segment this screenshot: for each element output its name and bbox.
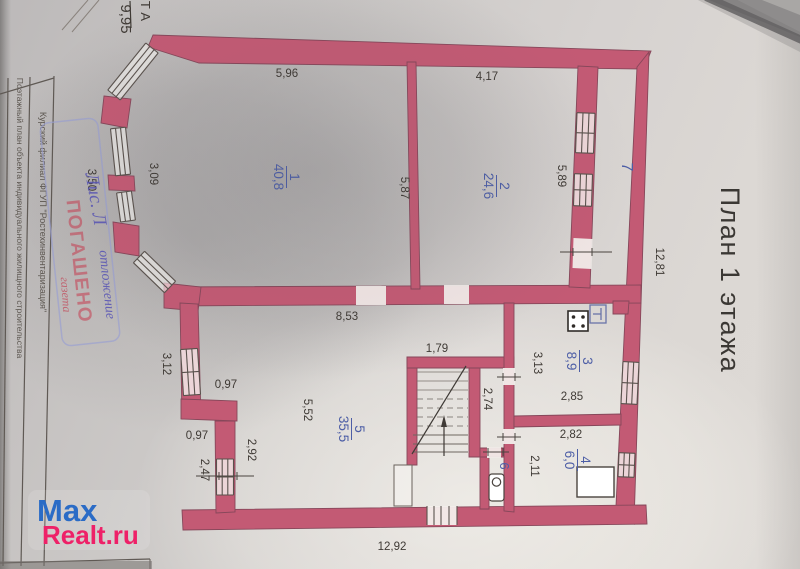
svg-text:2,82: 2,82 (560, 429, 582, 441)
svg-text:9,95: 9,95 (117, 4, 134, 33)
svg-text:Realt.ru: Realt.ru (42, 520, 139, 550)
svg-text:2: 2 (497, 182, 512, 190)
svg-text:6,0: 6,0 (562, 451, 577, 470)
svg-text:2,92: 2,92 (245, 439, 257, 461)
svg-text:4,17: 4,17 (476, 71, 498, 83)
svg-text:24,6: 24,6 (481, 173, 496, 199)
svg-text:0,97: 0,97 (186, 430, 208, 442)
svg-text:3,13: 3,13 (531, 352, 543, 374)
svg-text:5,87: 5,87 (398, 177, 410, 199)
svg-text:2,85: 2,85 (561, 391, 583, 403)
svg-text:3,09: 3,09 (147, 163, 159, 185)
svg-text:5,96: 5,96 (276, 68, 298, 80)
svg-text:0,97: 0,97 (215, 379, 237, 391)
svg-text:2,74: 2,74 (481, 388, 493, 411)
svg-text:40,8: 40,8 (271, 164, 286, 190)
svg-text:2,47: 2,47 (198, 459, 210, 481)
svg-text:4: 4 (578, 456, 593, 464)
svg-text:2,11: 2,11 (528, 455, 540, 477)
svg-text:отложение: отложение (95, 249, 117, 319)
svg-text:1: 1 (287, 173, 302, 181)
svg-text:12,92: 12,92 (378, 541, 407, 553)
svg-text:5,52: 5,52 (301, 399, 313, 421)
svg-text:газета: газета (58, 277, 74, 313)
svg-text:7: 7 (618, 163, 635, 172)
svg-text:Поэтажный план объекта индивид: Поэтажный план объекта индивидуального ж… (15, 78, 25, 359)
svg-text:Курский филиал ФГУП "Ростехинв: Курский филиал ФГУП "Ростехинвентаризаци… (38, 112, 48, 312)
svg-text:35,5: 35,5 (336, 416, 351, 442)
svg-text:3,12: 3,12 (160, 353, 172, 375)
svg-text:3: 3 (580, 357, 595, 365)
svg-text:1,79: 1,79 (426, 343, 448, 355)
svg-text:12,81: 12,81 (653, 248, 665, 277)
svg-text:8,53: 8,53 (336, 311, 358, 323)
svg-text:5,89: 5,89 (555, 165, 567, 187)
svg-text:План 1 этажа: План 1 этажа (715, 187, 745, 373)
svg-text:6: 6 (497, 462, 512, 469)
svg-text:5: 5 (352, 425, 367, 433)
svg-text:Т А: Т А (138, 1, 153, 22)
svg-text:8,9: 8,9 (564, 352, 579, 371)
